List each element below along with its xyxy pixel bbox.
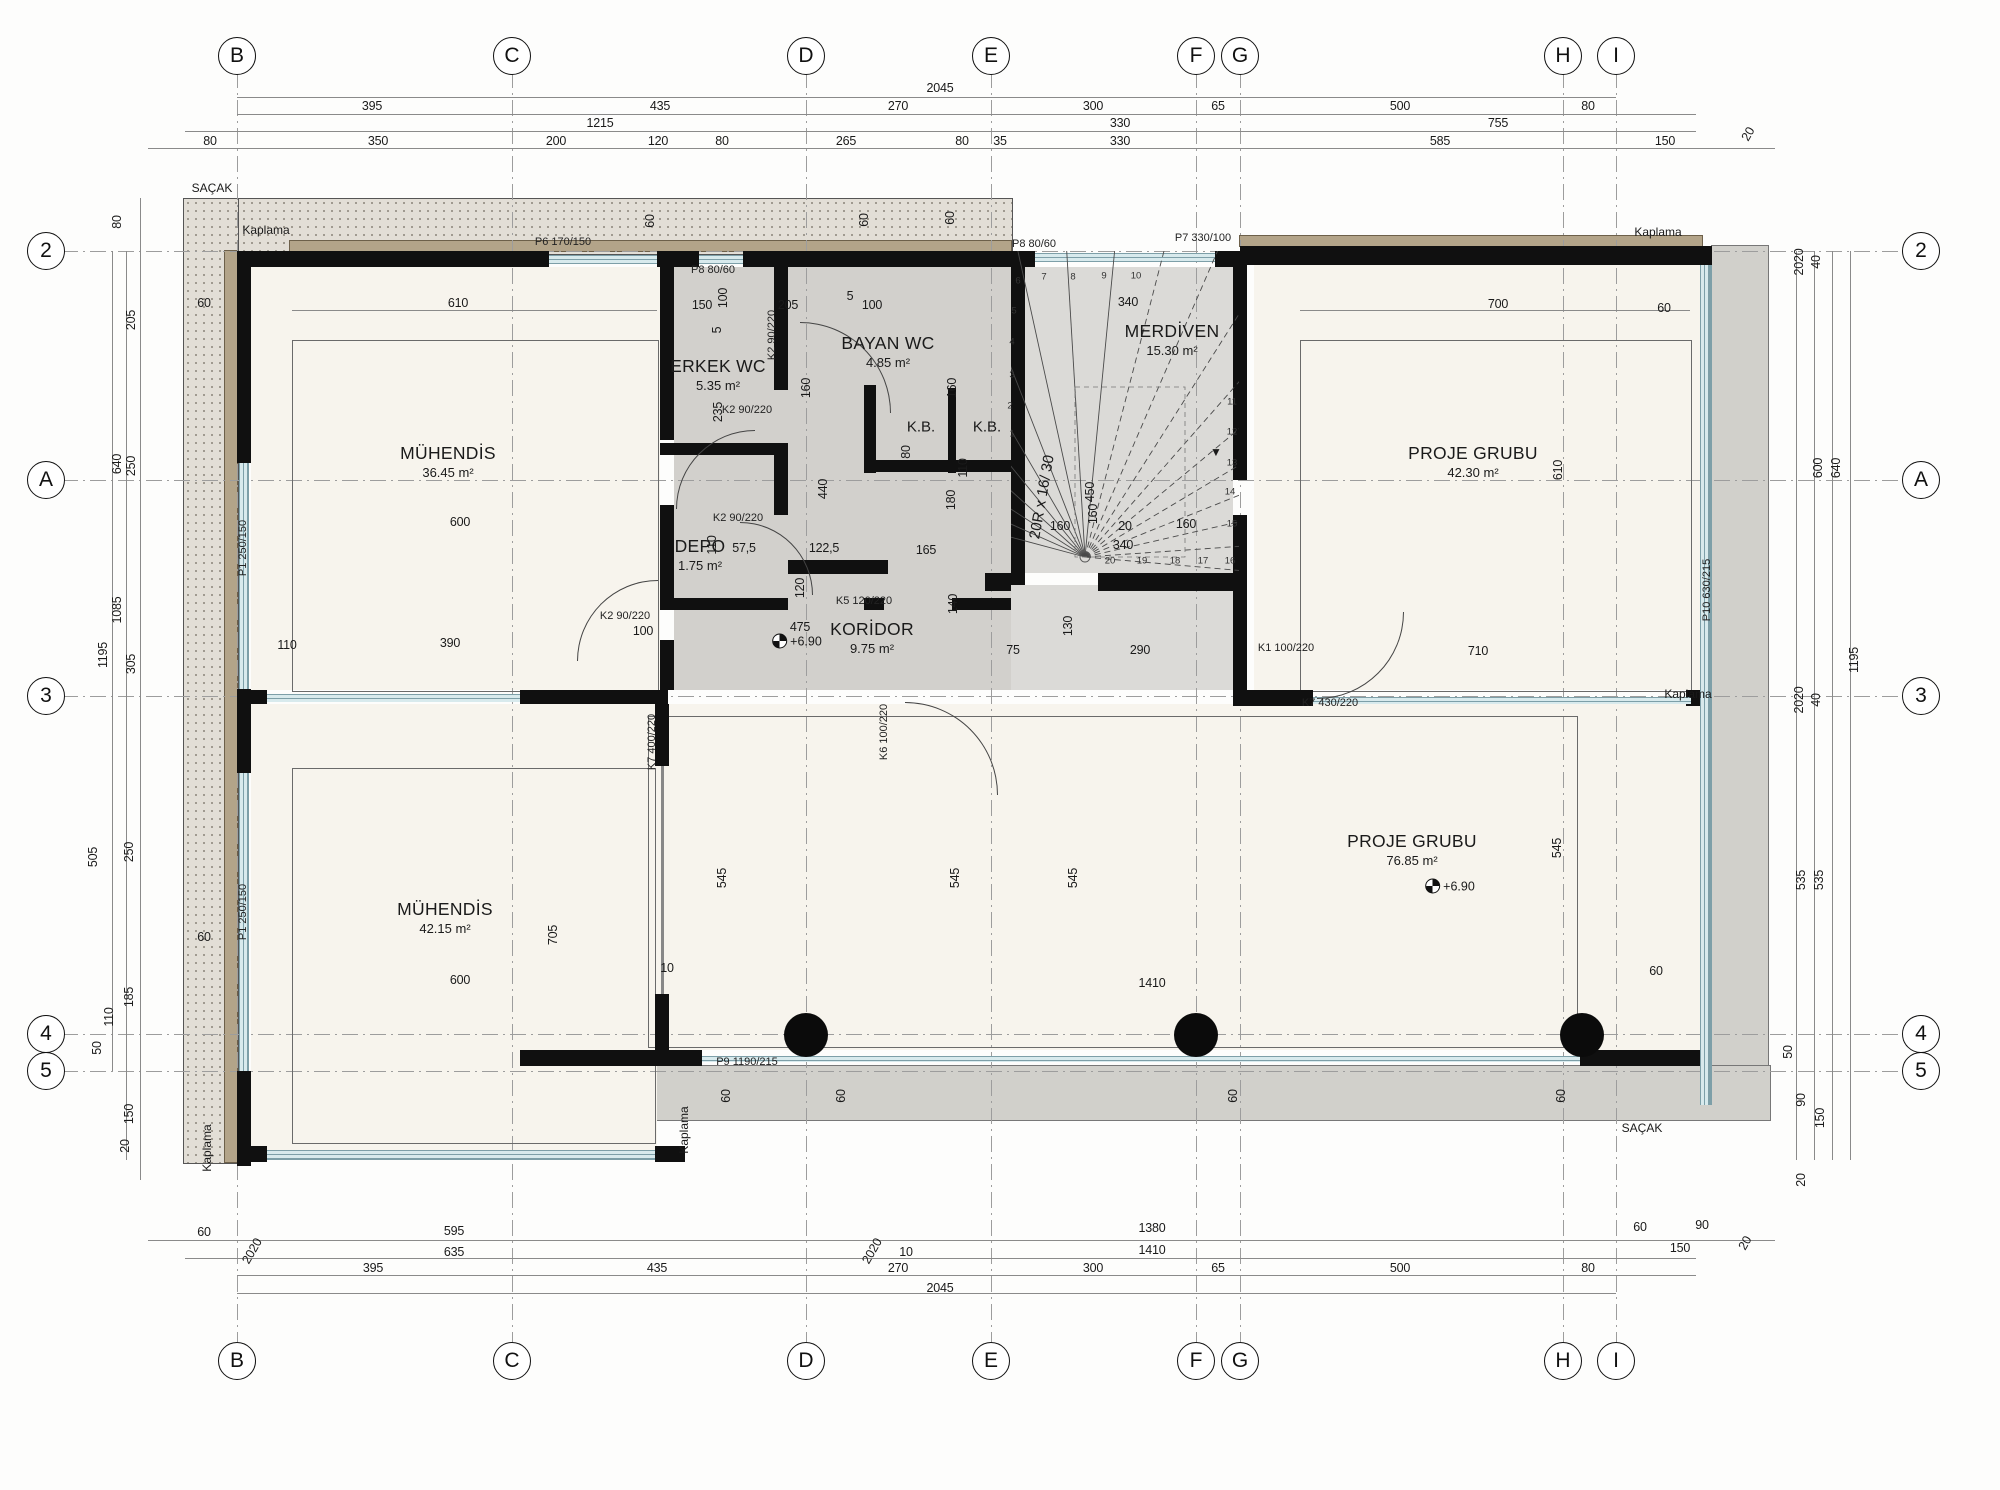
window-p8: [699, 255, 743, 264]
room-label: MERDİVEN 15.30 m²: [1125, 321, 1220, 359]
dimension-text: 595: [444, 1224, 464, 1238]
dimension-text: 600: [450, 973, 470, 987]
wall: [952, 598, 1011, 610]
stair-tread-number: 19: [1137, 556, 1148, 567]
dimension-text: 20: [1118, 519, 1132, 533]
opening-label: P9 1190/215: [716, 1056, 778, 1068]
grid-bubble-label: F: [1190, 1349, 1203, 1373]
dimension-text: 80: [899, 445, 913, 459]
grid-bubble: F: [1177, 1342, 1215, 1380]
dimension-text: 205: [778, 298, 798, 312]
stair-tread-number: 3: [1009, 370, 1014, 381]
dimension-text: 265: [836, 134, 856, 148]
dimension-text: 60: [943, 211, 957, 225]
floor-plan-sheet: BCDEFGHI BCDEFGHI 2A345 2A345 2045395435…: [0, 0, 2000, 1490]
annotation-text: ▼: [1210, 445, 1222, 459]
dimension-text: 1215: [586, 116, 613, 130]
wall: [660, 598, 788, 610]
grid-bubble-label: 4: [1915, 1022, 1927, 1046]
window-row3-left: [267, 694, 520, 702]
room-area: 5.35 m²: [670, 378, 766, 394]
opening-label: K6 100/220: [878, 704, 890, 760]
kb-label: K.B.: [907, 419, 935, 436]
dimension-text: 122,5: [809, 541, 839, 555]
dimension-text: 440: [816, 479, 830, 499]
stair-tread-number: 9: [1101, 271, 1106, 282]
dimension-text: 20: [1794, 1173, 1808, 1187]
dimension-text: 40: [1809, 255, 1823, 269]
room-label: PROJE GRUBU 42.30 m²: [1408, 443, 1538, 481]
wall: [774, 455, 788, 515]
room-name: MÜHENDİS: [400, 443, 496, 465]
grid-bubble-label: E: [984, 1349, 998, 1373]
dimension-text: 545: [1550, 838, 1564, 858]
wall: [237, 1146, 267, 1162]
grid-bubble: C: [493, 1342, 531, 1380]
opening-label: K2 90/220: [600, 610, 650, 622]
curtain-window-p10: [1700, 265, 1712, 1105]
grid-bubble-label: B: [230, 1349, 244, 1373]
dimension-text: 350: [368, 134, 388, 148]
column: [784, 1013, 828, 1057]
stair-tread-number: 1: [1009, 429, 1014, 440]
dimension-text: 110: [277, 638, 296, 652]
grid-bubble: A: [27, 461, 65, 499]
annotation-text: Kaplama: [200, 1124, 214, 1171]
column: [1560, 1013, 1604, 1057]
dimension-text: 2045: [926, 1281, 953, 1295]
opening-label: P8 80/60: [691, 264, 735, 276]
dimension-text: 200: [546, 134, 566, 148]
grid-bubble: C: [493, 37, 531, 75]
dimension-text: 2020: [1792, 686, 1806, 713]
dimension-text: 300: [1083, 1261, 1103, 1275]
opening-label: P7 330/100: [1175, 232, 1231, 244]
dimension-text: 60: [1657, 301, 1671, 315]
grid-bubble-label: G: [1232, 1349, 1248, 1373]
room-label: DEPO 1.75 m²: [675, 536, 726, 574]
dimension-text: 545: [1066, 868, 1080, 888]
dimension-text: 110: [956, 458, 970, 477]
dimension-text: 130: [1061, 616, 1075, 636]
stair-tread-number: 12: [1227, 427, 1238, 438]
window-p6: [549, 255, 657, 264]
dimension-text: 610: [448, 296, 468, 310]
room-name: MERDİVEN: [1125, 321, 1220, 343]
room-label: BAYAN WC 4.85 m²: [841, 333, 934, 371]
opening-label: P1 250/150: [237, 884, 249, 940]
grid-bubble-label: 5: [40, 1059, 52, 1083]
room-name: PROJE GRUBU: [1347, 831, 1477, 853]
wall: [237, 251, 251, 463]
opening-label: K7 430/220: [1302, 697, 1358, 709]
stair-tread-number: 8: [1070, 272, 1075, 283]
dim-line: [185, 131, 1696, 132]
dimension-text: 450: [1083, 482, 1097, 502]
dimension-text: 180: [944, 490, 958, 510]
room-area: 76.85 m²: [1347, 853, 1477, 869]
wall: [237, 251, 549, 267]
dimension-text: 535: [1794, 870, 1808, 890]
dimension-text: 395: [363, 1261, 383, 1275]
dimension-text: 435: [647, 1261, 667, 1275]
grid-bubble: D: [787, 1342, 825, 1380]
window-k7-430: [1313, 697, 1691, 704]
dimension-text: 330: [1110, 116, 1130, 130]
dimension-text: 80: [955, 134, 969, 148]
dimension-text: 160: [1176, 517, 1196, 531]
dimension-text: 100: [633, 624, 653, 638]
opening-label: P1 250/150: [237, 520, 249, 576]
dimension-text: 250: [124, 456, 138, 476]
dimension-text: 120: [793, 578, 807, 598]
stair-tread-number: 17: [1198, 556, 1209, 567]
balcony-strip-right: [1712, 246, 1768, 1120]
stair-tread-number: 7: [1041, 272, 1046, 283]
dimension-text: 120: [648, 134, 668, 148]
grid-bubble-label: D: [798, 44, 813, 68]
dimension-text: 80: [715, 134, 729, 148]
dimension-text: 340: [1118, 295, 1138, 309]
room-area: 9.75 m²: [830, 641, 914, 657]
dimension-text: 165: [916, 543, 936, 557]
window-p9: [702, 1056, 1580, 1062]
opening-label: K2 90/220: [766, 310, 778, 360]
dimension-text: 545: [715, 868, 729, 888]
dimension-text: 300: [1083, 99, 1103, 113]
dimension-text: 50: [1781, 1045, 1795, 1059]
level-value: +6.90: [790, 634, 822, 648]
dimension-text: 80: [110, 215, 124, 229]
dimension-text: 1195: [1847, 647, 1861, 673]
dim-line: [237, 114, 1696, 115]
wall: [660, 505, 674, 610]
dimension-text: 150: [1813, 1108, 1827, 1128]
wall: [1580, 1050, 1702, 1066]
dimension-text: 160: [1050, 519, 1070, 533]
grid-bubble: H: [1544, 37, 1582, 75]
grid-bubble: A: [1902, 461, 1940, 499]
dimension-text: 330: [1110, 134, 1130, 148]
kaplama-strip-top-right: [1240, 236, 1702, 246]
grid-bubble: I: [1597, 37, 1635, 75]
grid-bubble: 5: [1902, 1052, 1940, 1090]
grid-bubble: I: [1597, 1342, 1635, 1380]
dimension-text: 20: [1739, 125, 1758, 144]
balcony-strip-bottom: [520, 1066, 1770, 1120]
grid-bubble-label: H: [1555, 1349, 1570, 1373]
grid-bubble: B: [218, 1342, 256, 1380]
grid-bubble-label: I: [1613, 1349, 1619, 1373]
dimension-text: 2045: [926, 81, 953, 95]
dimension-text: 700: [1488, 297, 1508, 311]
dimension-text: 150: [1655, 134, 1675, 148]
room-label: PROJE GRUBU 76.85 m²: [1347, 831, 1477, 869]
dimension-text: 75: [1006, 643, 1020, 657]
level-marker: +6.90: [1425, 879, 1475, 894]
column: [1174, 1013, 1218, 1057]
dimension-text: 395: [362, 99, 382, 113]
dimension-text: 585: [1430, 134, 1450, 148]
grid-bubble: E: [972, 37, 1010, 75]
wall: [864, 460, 1011, 472]
annotation-text: SAÇAK: [192, 181, 233, 195]
dimension-text: 5: [710, 327, 724, 334]
dimension-text: 57,5: [732, 541, 756, 555]
dimension-text: 20: [1736, 1234, 1755, 1253]
room-area: 4.85 m²: [841, 355, 934, 371]
wall: [237, 690, 267, 704]
room-area: 36.45 m²: [400, 465, 496, 481]
stair-tread-number: 16: [1225, 556, 1236, 567]
dimension-text: 100: [716, 288, 730, 308]
dimension-text: 475: [790, 620, 810, 634]
dimension-text: 545: [948, 868, 962, 888]
annotation-text: Kaplama: [677, 1106, 691, 1153]
dimension-text: 600: [1811, 458, 1825, 478]
opening-label: K5 120/220: [836, 595, 892, 607]
dimension-text: 160: [799, 378, 813, 398]
stair-tread-number: 20: [1105, 556, 1116, 567]
opening-label: K1 100/220: [1258, 642, 1314, 654]
dimension-text: 110: [102, 1007, 116, 1026]
dimension-text: 1380: [1138, 1221, 1165, 1235]
dimension-text: 1410: [1138, 976, 1165, 990]
grid-bubble-label: 3: [1915, 684, 1927, 708]
dimension-text: 80: [1581, 1261, 1595, 1275]
dimension-text: 640: [1829, 458, 1843, 478]
room-label: MÜHENDİS 36.45 m²: [400, 443, 496, 481]
grid-bubble: H: [1544, 1342, 1582, 1380]
dim-line: [1850, 251, 1851, 1160]
dimension-text: 60: [197, 1225, 211, 1239]
dimension-text: 90: [1794, 1093, 1808, 1107]
room-name: ERKEK WC: [670, 356, 766, 378]
dimension-text: 60: [1554, 1089, 1568, 1103]
dimension-text: 100: [862, 298, 882, 312]
dim-line: [112, 251, 113, 1071]
stair-tread-number: 6: [1015, 276, 1020, 287]
dimension-text: 755: [1488, 116, 1508, 130]
dimension-text: 710: [1468, 644, 1488, 658]
dimension-text: 35: [993, 134, 1007, 148]
dim-line: [140, 198, 141, 1180]
dimension-text: 505: [86, 847, 100, 867]
dim-line: [185, 1258, 1696, 1259]
dimension-text: 60: [719, 1089, 733, 1103]
dim-line: [148, 1240, 1775, 1241]
grid-bubble-label: B: [230, 44, 244, 68]
stair-tread-number: 13: [1227, 458, 1238, 469]
dimension-text: 1195: [96, 642, 110, 668]
dimension-text: 640: [110, 454, 124, 474]
grid-bubble-label: 5: [1915, 1059, 1927, 1083]
room-label: ERKEK WC 5.35 m²: [670, 356, 766, 394]
dimension-text: 80: [203, 134, 217, 148]
dim-line: [237, 97, 1616, 98]
dimension-text: 270: [888, 99, 908, 113]
annotation-text: Kaplama: [242, 223, 289, 237]
kaplama-strip-top: [290, 241, 1011, 251]
grid-bubble: 5: [27, 1052, 65, 1090]
stair-tread-number: 18: [1170, 556, 1181, 567]
dimension-text: 60: [197, 296, 211, 310]
dimension-text: 1085: [110, 596, 124, 623]
dimension-text: 90: [1695, 1218, 1709, 1232]
room-label: MÜHENDİS 42.15 m²: [397, 899, 493, 937]
dimension-text: 610: [1551, 460, 1565, 480]
grid-bubble: 2: [1902, 232, 1940, 270]
grid-bubble: F: [1177, 37, 1215, 75]
opening-label: P8 80/60: [1012, 238, 1056, 250]
grid-bubble: 4: [1902, 1015, 1940, 1053]
room-area: 42.15 m²: [397, 921, 493, 937]
level-symbol-icon: [1425, 879, 1440, 894]
kaplama-strip-left: [225, 251, 237, 1162]
dimension-text: 160: [945, 378, 959, 398]
grid-bubble-label: H: [1555, 44, 1570, 68]
opening-label: P10 630/215: [1701, 559, 1713, 621]
dimension-text: 270: [888, 1261, 908, 1275]
stair-tread-number: 15: [1227, 519, 1238, 530]
grid-bubble: G: [1221, 1342, 1259, 1380]
room-area: 15.30 m²: [1125, 343, 1220, 359]
grid-bubble: 4: [27, 1015, 65, 1053]
annotation-text: Kaplama: [1664, 687, 1711, 701]
door-leaf-k7: [661, 766, 664, 994]
grid-bubble: 2: [27, 232, 65, 270]
grid-bubble: E: [972, 1342, 1010, 1380]
stair-tread-number: 5: [1011, 306, 1016, 317]
wall: [655, 994, 669, 1054]
grid-bubble-label: 2: [40, 239, 52, 263]
dimension-text: 40: [1809, 693, 1823, 707]
stair-tread-number: 14: [1225, 487, 1236, 498]
opening-label: K7 400/220: [646, 714, 658, 770]
grid-bubble-label: C: [504, 1349, 519, 1373]
dimension-text: 1410: [1138, 1243, 1165, 1257]
stair-tread-number: 11: [1227, 397, 1237, 408]
room-name: DEPO: [675, 536, 726, 558]
grid-bubble-label: 3: [40, 684, 52, 708]
dimension-text: 50: [90, 1041, 104, 1055]
grid-bubble: G: [1221, 37, 1259, 75]
dimension-text: 185: [122, 987, 136, 1007]
room-area: 42.30 m²: [1408, 465, 1538, 481]
dim-line: [148, 148, 1775, 149]
dimension-text: 150: [122, 1104, 136, 1124]
dimension-text: 10: [899, 1245, 913, 1259]
dimension-text: 60: [857, 213, 871, 227]
room-label: KORİDOR 9.75 m²: [830, 619, 914, 657]
grid-bubble: 3: [27, 677, 65, 715]
dimension-text: 500: [1390, 1261, 1410, 1275]
annotation-text: SAÇAK: [1622, 1121, 1663, 1135]
dimension-text: 60: [1633, 1220, 1647, 1234]
wall: [660, 640, 674, 690]
grid-bubble-label: G: [1232, 44, 1248, 68]
room-name: PROJE GRUBU: [1408, 443, 1538, 465]
wall: [520, 690, 668, 704]
grid-bubble-label: A: [39, 468, 53, 492]
room-area: 1.75 m²: [675, 558, 726, 574]
dim-line: [126, 251, 127, 1160]
grid-bubble-label: I: [1613, 44, 1619, 68]
dimension-text: 20: [118, 1139, 132, 1153]
dimension-text: 535: [1812, 870, 1826, 890]
dimension-text: 500: [1390, 99, 1410, 113]
dimension-text: 65: [1211, 99, 1225, 113]
dimension-text: 205: [124, 310, 138, 330]
opening-label: P6 170/150: [535, 236, 591, 248]
grid-bubble-label: C: [504, 44, 519, 68]
level-symbol-icon: [772, 634, 787, 649]
kb-label: K.B.: [973, 419, 1001, 436]
annotation-text: Kaplama: [1634, 225, 1681, 239]
grid-bubble: D: [787, 37, 825, 75]
dimension-text: 140: [946, 594, 960, 614]
dimension-text: 340: [1113, 538, 1133, 552]
dimension-text: 705: [546, 925, 560, 945]
dimension-text: 10: [660, 961, 674, 975]
dimension-text: 60: [1226, 1089, 1240, 1103]
room-inner-outline: [292, 768, 656, 1144]
opening-label: K2 90/220: [713, 512, 763, 524]
dimension-text: 60: [1649, 964, 1663, 978]
dimension-text: 60: [834, 1089, 848, 1103]
dim-line: [1832, 251, 1833, 1160]
wall: [520, 1050, 702, 1066]
dimension-text: 5: [847, 289, 854, 303]
stair-tread-number: 4: [1009, 337, 1014, 348]
dimension-text: 390: [440, 636, 460, 650]
dimension-text: 150: [692, 298, 712, 312]
grid-bubble-label: D: [798, 1349, 813, 1373]
wall: [1240, 246, 1702, 265]
window-bottom-left: [267, 1150, 655, 1160]
room-name: KORİDOR: [830, 619, 914, 641]
grid-bubble: 3: [1902, 677, 1940, 715]
grid-bubble-label: F: [1190, 44, 1203, 68]
level-value: +6.90: [1443, 879, 1475, 893]
dimension-text: 635: [444, 1245, 464, 1259]
dimension-text: 60: [643, 214, 657, 228]
dimension-text: 305: [124, 654, 138, 674]
grid-bubble-label: A: [1914, 468, 1928, 492]
wall: [660, 265, 674, 440]
grid-bubble: B: [218, 37, 256, 75]
room-name: MÜHENDİS: [397, 899, 493, 921]
dimension-text: 290: [1130, 643, 1150, 657]
dimension-text: 65: [1211, 1261, 1225, 1275]
grid-bubble-label: 2: [1915, 239, 1927, 263]
dimension-text: 80: [1581, 99, 1595, 113]
stair-tread-number: 2: [1007, 401, 1012, 412]
stair-tread-number: 10: [1131, 271, 1142, 282]
opening-label: K2 90/220: [722, 404, 772, 416]
dimension-text: 250: [122, 842, 136, 862]
grid-bubble-label: 4: [40, 1022, 52, 1046]
wall: [1690, 246, 1712, 265]
level-marker: +6.90: [772, 634, 822, 649]
grid-bubble-label: E: [984, 44, 998, 68]
dimension-text: 160: [1086, 504, 1100, 524]
dim-line: [237, 1275, 1696, 1276]
dim-line: [292, 310, 657, 311]
dimension-text: 60: [197, 930, 211, 944]
dimension-text: 600: [450, 515, 470, 529]
dimension-text: 2020: [1792, 248, 1806, 275]
